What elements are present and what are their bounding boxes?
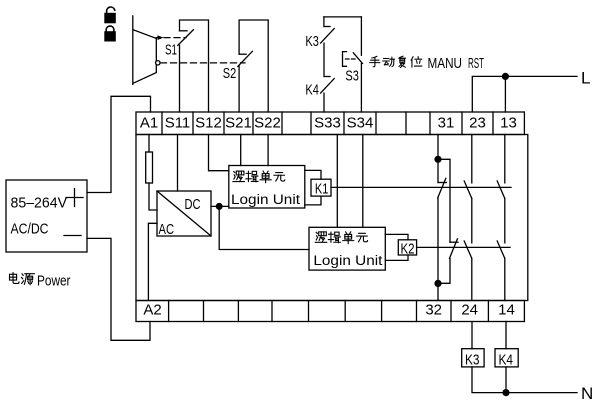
svg-text:S2: S2 bbox=[223, 65, 237, 82]
svg-text:K3: K3 bbox=[465, 352, 480, 369]
svg-text:AC/DC: AC/DC bbox=[11, 221, 49, 238]
svg-text:N: N bbox=[581, 384, 593, 403]
svg-text:AC: AC bbox=[159, 221, 175, 238]
svg-text:S21: S21 bbox=[225, 114, 252, 131]
svg-text:Login Unit: Login Unit bbox=[313, 253, 382, 268]
svg-text:DC: DC bbox=[185, 196, 201, 213]
svg-text:K1: K1 bbox=[315, 180, 329, 197]
svg-text:13: 13 bbox=[500, 114, 517, 131]
svg-text:K3: K3 bbox=[305, 33, 319, 50]
svg-text:A1: A1 bbox=[140, 114, 158, 131]
svg-text:14: 14 bbox=[498, 301, 515, 318]
svg-text:Login Unit: Login Unit bbox=[231, 192, 300, 207]
svg-text:S22: S22 bbox=[254, 114, 281, 131]
svg-text:32: 32 bbox=[425, 301, 442, 318]
svg-text:85–264V: 85–264V bbox=[11, 195, 68, 212]
svg-text:S3: S3 bbox=[345, 68, 359, 85]
svg-text:A2: A2 bbox=[143, 301, 161, 318]
svg-text:K2: K2 bbox=[401, 240, 415, 257]
svg-text:S12: S12 bbox=[195, 114, 222, 131]
svg-text:S34: S34 bbox=[347, 114, 374, 131]
svg-text:S1: S1 bbox=[165, 42, 177, 59]
svg-text:31: 31 bbox=[438, 114, 455, 131]
svg-text:S11: S11 bbox=[165, 114, 191, 131]
svg-text:Power: Power bbox=[37, 273, 71, 290]
svg-text:23: 23 bbox=[469, 114, 486, 131]
svg-text:24: 24 bbox=[461, 301, 478, 318]
svg-text:RST: RST bbox=[468, 55, 484, 72]
svg-text:L: L bbox=[581, 69, 590, 88]
svg-text:K4: K4 bbox=[305, 82, 319, 99]
svg-text:K4: K4 bbox=[499, 352, 514, 369]
svg-text:MANU: MANU bbox=[428, 55, 463, 72]
svg-text:S33: S33 bbox=[314, 114, 341, 131]
